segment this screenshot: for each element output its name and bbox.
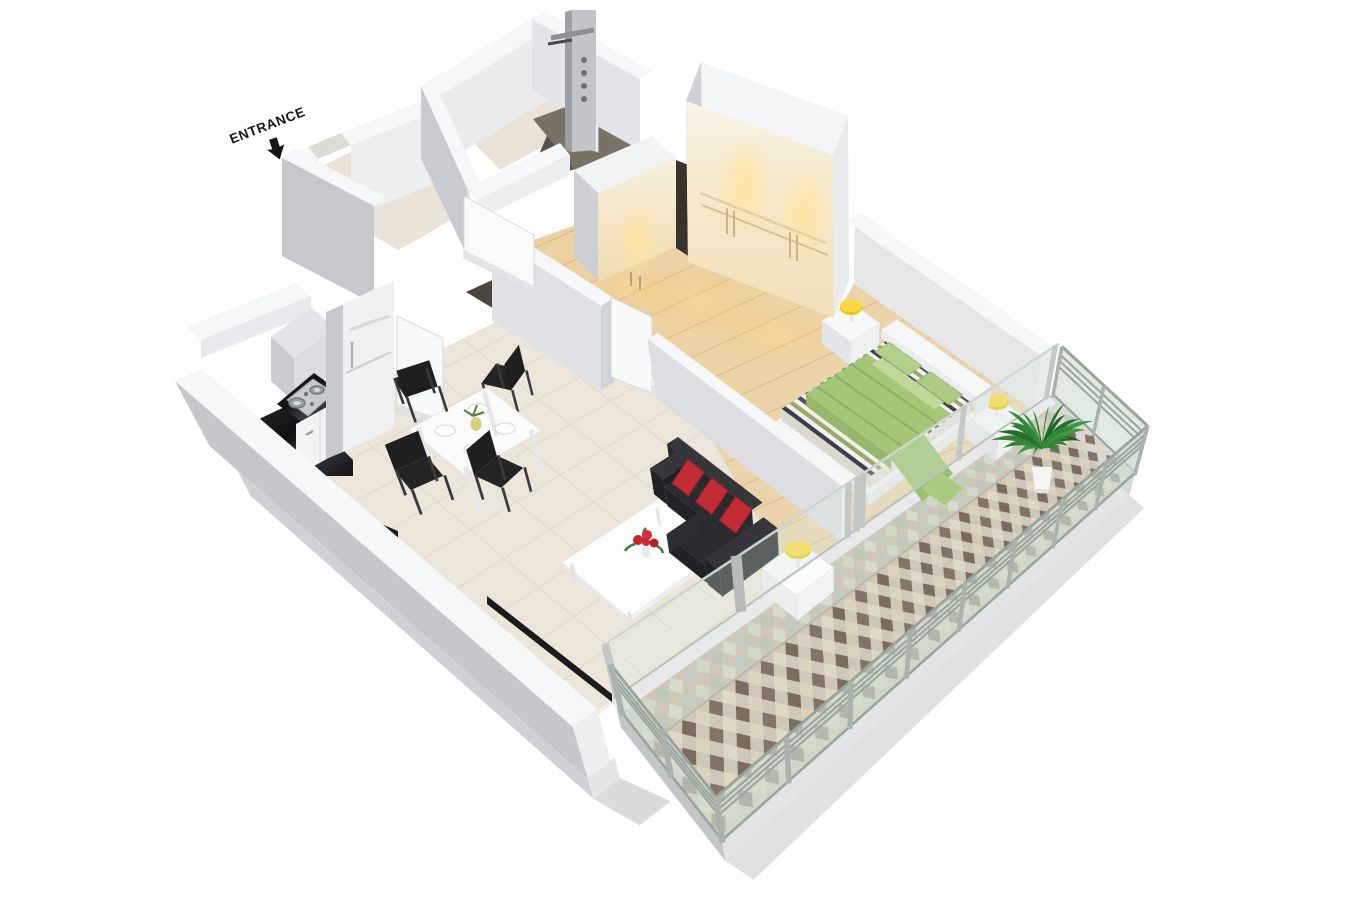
svg-text:ENTRANCE: ENTRANCE bbox=[227, 104, 307, 147]
